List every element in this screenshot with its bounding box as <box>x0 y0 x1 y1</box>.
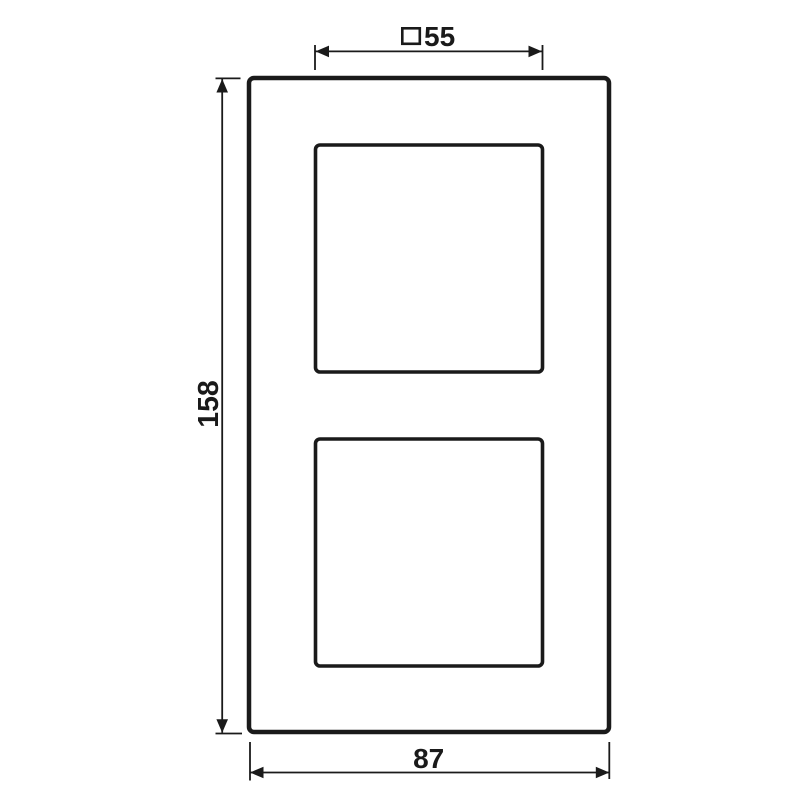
svg-text:158: 158 <box>193 380 225 428</box>
svg-text:55: 55 <box>424 21 455 52</box>
svg-text:87: 87 <box>413 743 444 774</box>
